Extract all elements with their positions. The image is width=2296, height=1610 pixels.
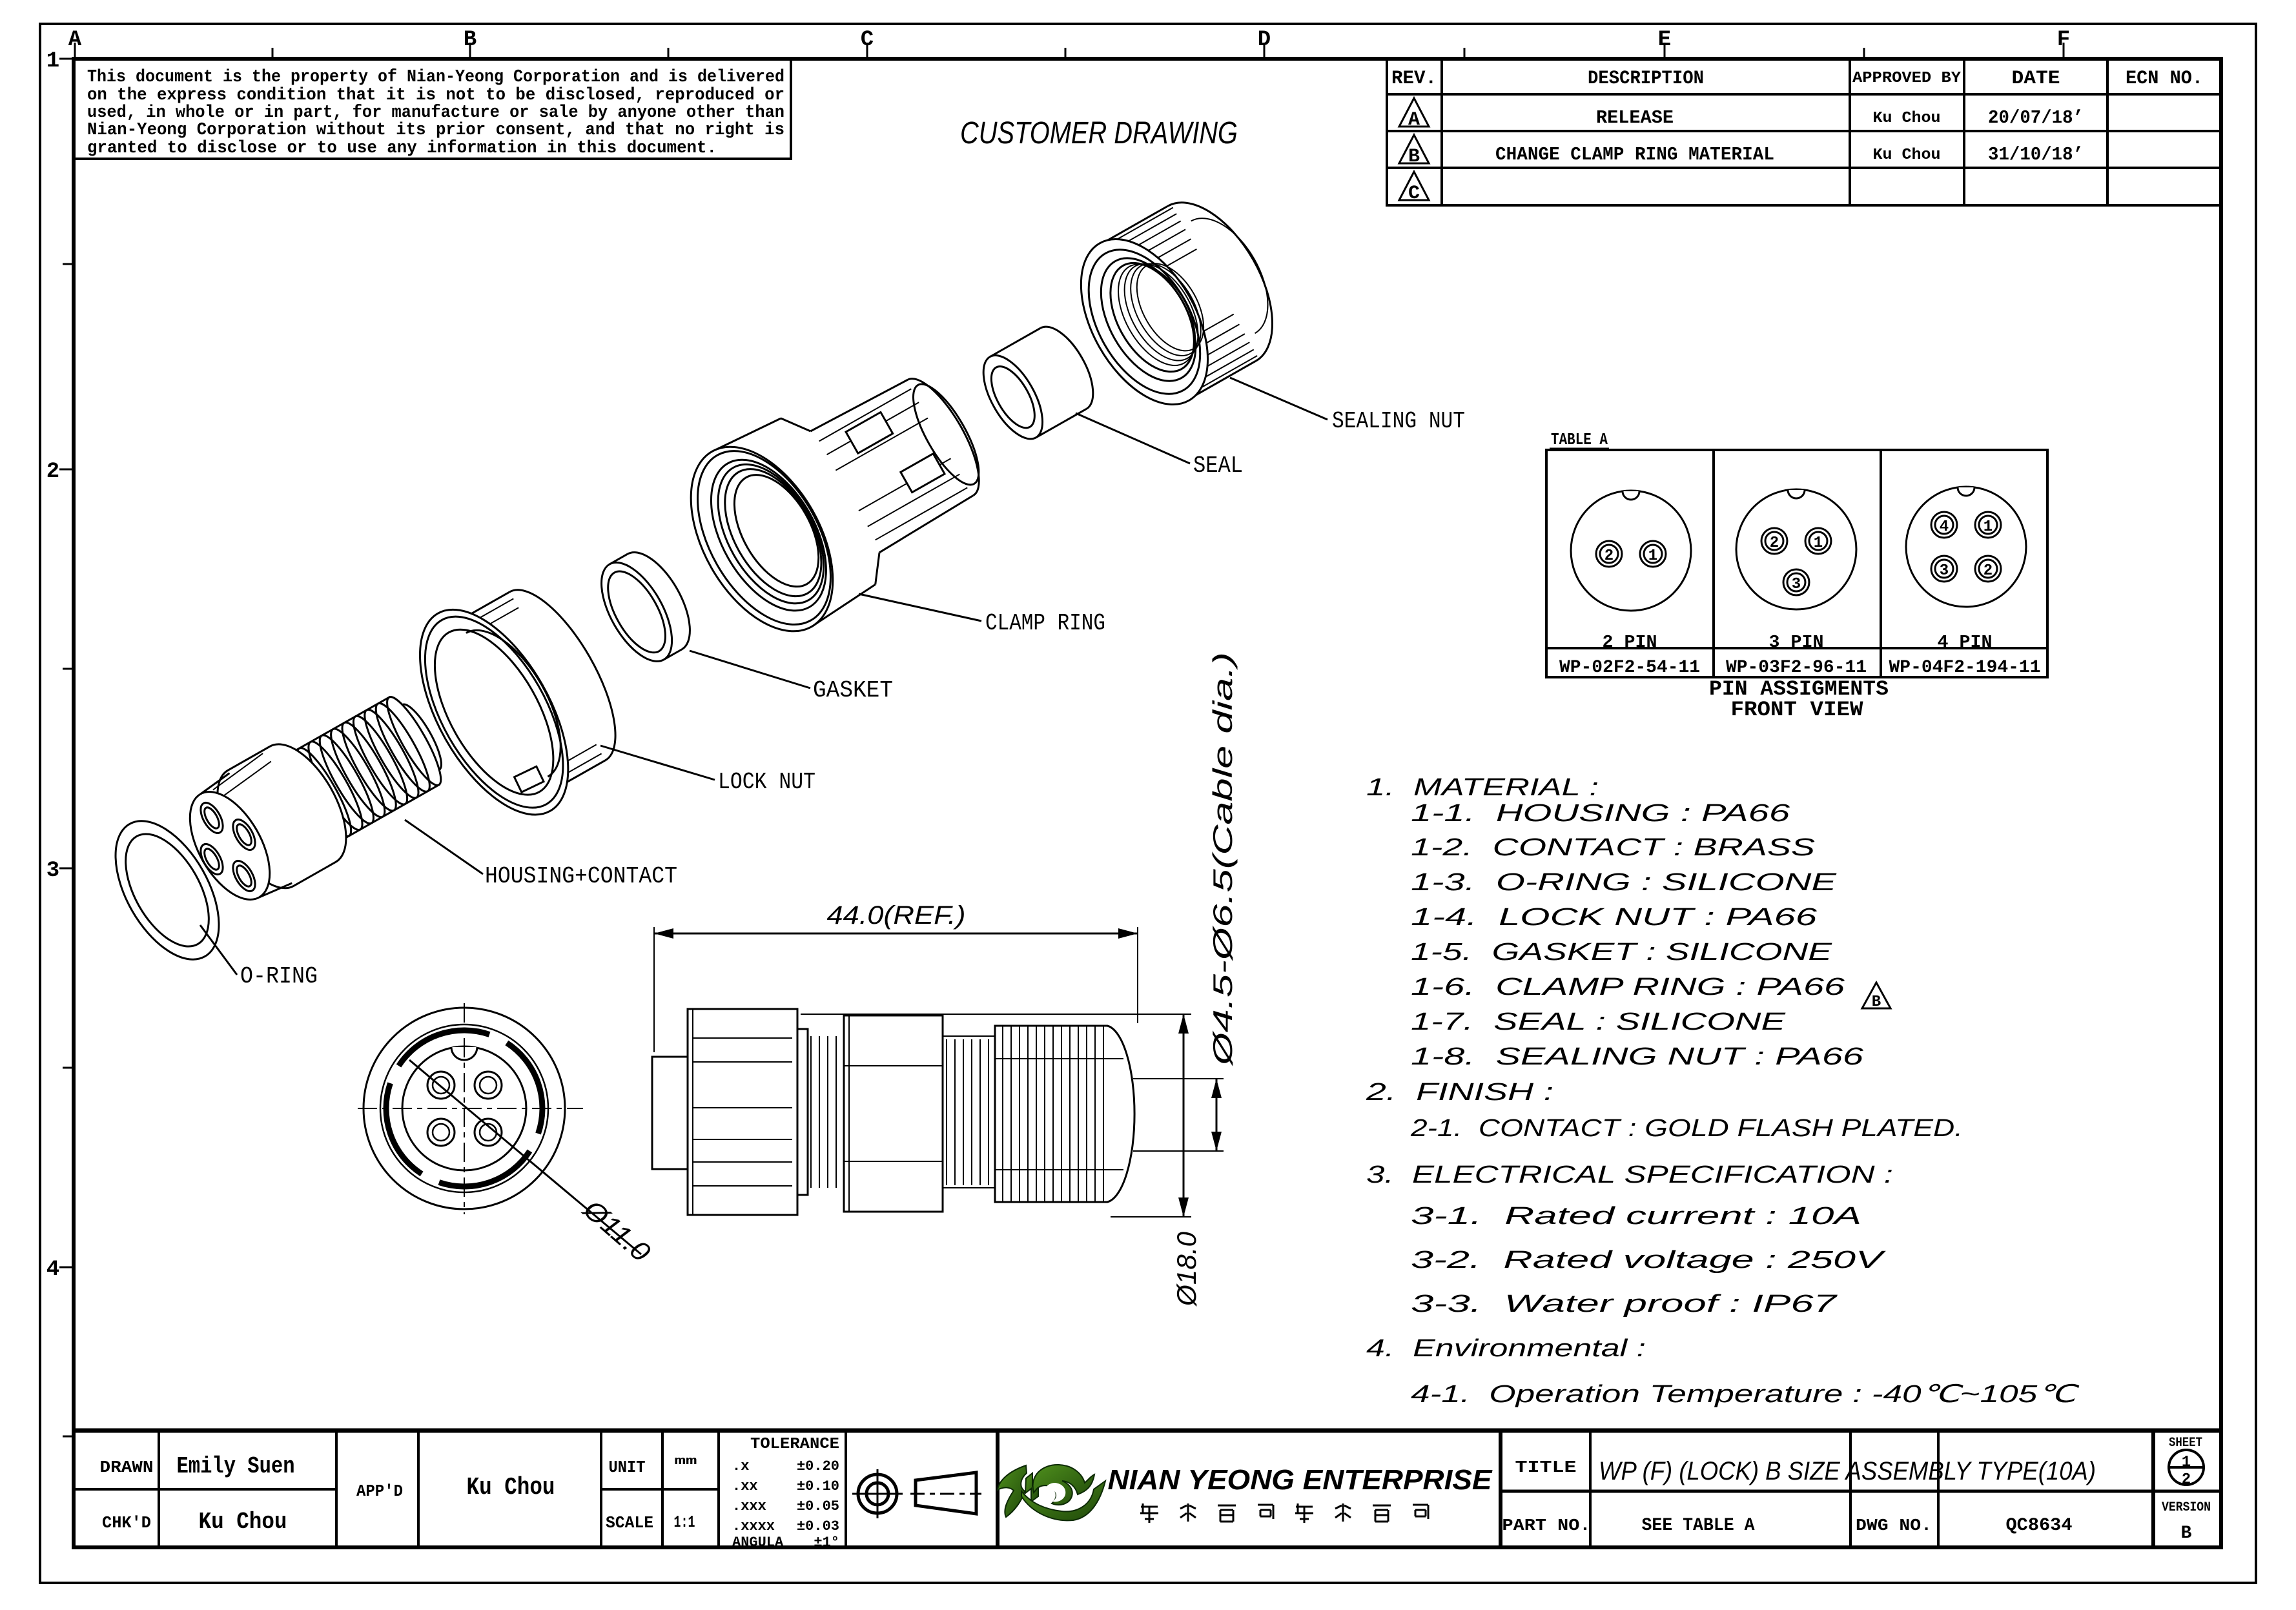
svg-text:Ku Chou: Ku Chou: [1873, 147, 1941, 164]
svg-text:A: A: [1408, 109, 1420, 131]
svg-text:4-1. Operation Temperature :: 4-1. Operation Temperature : -40℃~105℃: [1411, 1381, 2080, 1408]
svg-text:±1°: ±1°: [814, 1534, 839, 1551]
svg-text:.x: .x: [732, 1458, 749, 1474]
svg-text:SEAL: SEAL: [1193, 453, 1243, 479]
svg-text:Ku Chou: Ku Chou: [467, 1474, 555, 1502]
svg-text:±0.03: ±0.03: [797, 1518, 839, 1534]
svg-text:1-5. GASKET : SILICONE: 1-5. GASKET : SILICONE: [1411, 939, 1832, 966]
svg-text:CHK'D: CHK'D: [102, 1513, 151, 1533]
svg-text:CHANGE CLAMP RING MATERIAL: CHANGE CLAMP RING MATERIAL: [1495, 144, 1774, 165]
svg-text:SCALE: SCALE: [606, 1513, 653, 1533]
svg-text:REV.: REV.: [1391, 68, 1437, 90]
svg-text:UNIT: UNIT: [609, 1458, 646, 1477]
svg-text:1: 1: [2182, 1454, 2191, 1471]
svg-text:3: 3: [1940, 562, 1949, 580]
svg-text:3-1. Rated current : 10A: 3-1. Rated current : 10A: [1411, 1203, 1861, 1230]
svg-text:4: 4: [1940, 518, 1949, 536]
svg-text:3-3. Water proof : IP67: 3-3. Water proof : IP67: [1411, 1290, 1838, 1318]
svg-text:DRAWN: DRAWN: [100, 1458, 154, 1477]
svg-text:1-2. CONTACT : BRASS: 1-2. CONTACT : BRASS: [1411, 834, 1815, 861]
svg-text:±0.05: ±0.05: [797, 1498, 839, 1514]
svg-text:.xx: .xx: [732, 1478, 758, 1494]
svg-text:3. ELECTRICAL SPECIFICATION :: 3. ELECTRICAL SPECIFICATION :: [1366, 1161, 1893, 1188]
svg-text:ANGULA: ANGULA: [732, 1534, 784, 1551]
svg-text:2 PIN: 2 PIN: [1603, 633, 1657, 653]
svg-text:NIAN YEONG ENTERPRISE: NIAN YEONG ENTERPRISE: [1108, 1464, 1493, 1496]
svg-text:1-1. HOUSING : PA66: 1-1. HOUSING : PA66: [1411, 800, 1790, 827]
svg-text:3: 3: [1792, 576, 1801, 593]
svg-text:WP-02F2-54-11: WP-02F2-54-11: [1559, 658, 1700, 678]
svg-text:Emily Suen: Emily Suen: [177, 1453, 295, 1480]
svg-text:DATE: DATE: [2012, 68, 2060, 90]
svg-text:1-7. SEAL : SILICONE: 1-7. SEAL : SILICONE: [1411, 1008, 1786, 1035]
svg-text:20/07/18’: 20/07/18’: [1988, 107, 2084, 128]
svg-text:PART NO.: PART NO.: [1502, 1516, 1591, 1535]
svg-text:Ø18.0: Ø18.0: [1171, 1231, 1202, 1307]
svg-text:ECN NO.: ECN NO.: [2126, 68, 2203, 90]
svg-text:2: 2: [1604, 547, 1614, 565]
svg-text:1: 1: [1648, 547, 1657, 565]
svg-text:VERSION: VERSION: [2162, 1500, 2211, 1515]
svg-text:APP'D: APP'D: [356, 1482, 403, 1501]
svg-text:Ku Chou: Ku Chou: [199, 1509, 287, 1535]
svg-text:on the express condition that: on the express condition that it is not …: [87, 86, 784, 105]
svg-text:1: 1: [1983, 518, 1993, 536]
svg-text:1-3. O-RING : SILICONE: 1-3. O-RING : SILICONE: [1411, 869, 1837, 896]
svg-text:1: 1: [46, 49, 59, 74]
svg-text:B: B: [1872, 994, 1881, 1011]
svg-text:2: 2: [1770, 535, 1779, 552]
svg-text:.xxx: .xxx: [732, 1498, 766, 1514]
svg-text:CLAMP RING: CLAMP RING: [985, 610, 1105, 637]
svg-text:3: 3: [46, 859, 59, 883]
svg-text:TOLERANCE: TOLERANCE: [750, 1436, 839, 1453]
svg-text:B: B: [1408, 146, 1420, 168]
svg-text:±0.10: ±0.10: [797, 1478, 839, 1494]
svg-text:SEE TABLE A: SEE TABLE A: [1642, 1516, 1755, 1536]
svg-text:Ø4.5-Ø6.5(Cable dia.): Ø4.5-Ø6.5(Cable dia.): [1207, 652, 1238, 1067]
svg-text:C: C: [1408, 183, 1420, 205]
svg-text:31/10/18’: 31/10/18’: [1988, 144, 2084, 165]
svg-text:DESCRIPTION: DESCRIPTION: [1588, 68, 1704, 90]
svg-text:WP-03F2-96-11: WP-03F2-96-11: [1726, 658, 1867, 678]
svg-text:.xxxx: .xxxx: [732, 1518, 775, 1534]
svg-text:LOCK NUT: LOCK NUT: [718, 769, 815, 795]
svg-text:TABLE A: TABLE A: [1551, 430, 1608, 449]
svg-text:GASKET: GASKET: [813, 677, 893, 704]
svg-text:4. Environmental :: 4. Environmental :: [1366, 1335, 1646, 1362]
svg-text:1-4. LOCK NUT : PA66: 1-4. LOCK NUT : PA66: [1411, 904, 1818, 931]
svg-text:2. FINISH :: 2. FINISH :: [1366, 1079, 1553, 1106]
svg-text:2-1. CONTACT : GOLD FLASH PLA: 2-1. CONTACT : GOLD FLASH PLATED.: [1410, 1115, 1963, 1142]
svg-text:3-2. Rated voltage : 250V: 3-2. Rated voltage : 250V: [1411, 1247, 1887, 1274]
svg-text:Ku Chou: Ku Chou: [1873, 110, 1941, 127]
svg-text:mm: mm: [675, 1455, 697, 1468]
svg-text:2: 2: [1983, 562, 1993, 580]
svg-text:used, in whole or in part, for: used, in whole or in part, for manufactu…: [87, 103, 784, 123]
svg-text:44.0(REF.): 44.0(REF.): [827, 901, 966, 930]
svg-text:±0.20: ±0.20: [797, 1458, 839, 1474]
svg-text:4: 4: [46, 1258, 59, 1282]
svg-text:B: B: [2181, 1523, 2192, 1544]
svg-text:3 PIN: 3 PIN: [1769, 633, 1824, 653]
svg-text:RELEASE: RELEASE: [1596, 107, 1674, 128]
svg-text:Nian-Yeong Corporation without: Nian-Yeong Corporation without its prior…: [87, 121, 784, 140]
svg-text:DWG NO.: DWG NO.: [1856, 1516, 1932, 1535]
svg-text:WP (F) (LOCK) B SIZE ASSEMBLY: WP (F) (LOCK) B SIZE ASSEMBLY TYPE(10A): [1599, 1457, 2096, 1485]
svg-text:SEALING NUT: SEALING NUT: [1332, 408, 1465, 434]
svg-text:2: 2: [46, 460, 59, 484]
svg-text:4 PIN: 4 PIN: [1938, 633, 1993, 653]
svg-text:CUSTOMER DRAWING: CUSTOMER DRAWING: [960, 116, 1238, 150]
svg-text:2: 2: [2182, 1471, 2191, 1489]
svg-text:TITLE: TITLE: [1515, 1458, 1577, 1477]
svg-text:APPROVED BY: APPROVED BY: [1852, 70, 1962, 87]
svg-text:1-6. CLAMP RING : PA66: 1-6. CLAMP RING : PA66: [1411, 973, 1845, 1001]
svg-text:O-RING: O-RING: [240, 963, 318, 990]
svg-text:SHEET: SHEET: [2169, 1436, 2202, 1451]
svg-text:1. MATERIAL :: 1. MATERIAL :: [1366, 774, 1599, 801]
svg-text:1-8. SEALING NUT : PA66: 1-8. SEALING NUT : PA66: [1411, 1043, 1864, 1070]
svg-text:WP-04F2-194-11: WP-04F2-194-11: [1889, 658, 2041, 678]
svg-text:FRONT VIEW: FRONT VIEW: [1731, 698, 1864, 722]
svg-text:HOUSING+CONTACT: HOUSING+CONTACT: [485, 863, 677, 890]
svg-text:granted to disclose or to use: granted to disclose or to use any inform…: [87, 139, 717, 158]
svg-text:This document is the property: This document is the property of Nian-Ye…: [87, 68, 784, 87]
svg-text:QC8634: QC8634: [2006, 1516, 2073, 1536]
svg-text:1:1: 1:1: [674, 1513, 695, 1532]
svg-text:1: 1: [1814, 535, 1823, 552]
